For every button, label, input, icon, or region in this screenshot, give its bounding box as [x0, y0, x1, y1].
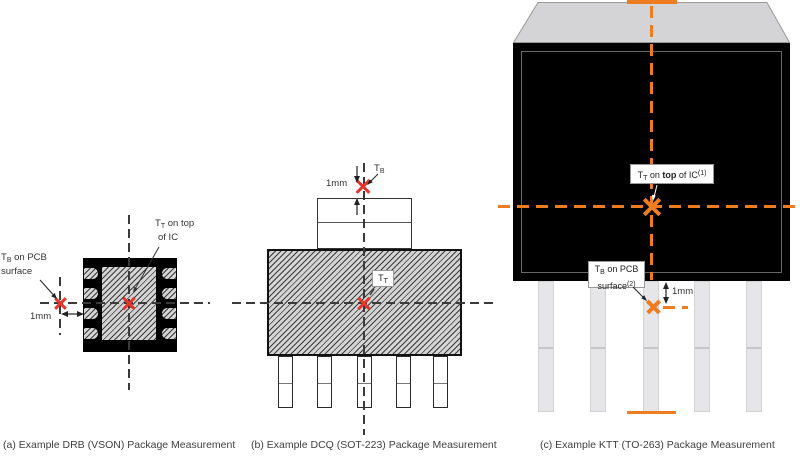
- fig-c-bottom-orange-mark: [627, 411, 676, 414]
- fig-c-pin: [746, 281, 762, 412]
- fig-a-dimension-arrow: [61, 309, 84, 319]
- fig-b-tt-leader-line: [366, 287, 376, 299]
- fig-a-pin: [84, 268, 98, 279]
- fig-a-pin: [162, 328, 176, 339]
- fig-c-vertical-centerline: [650, 6, 653, 280]
- fig-c-tt-label: TT on top of IC(1): [630, 164, 714, 184]
- fig-c-dimension-arrow: [662, 282, 670, 304]
- fig-a-tb-leader-arrow: [38, 278, 60, 302]
- fig-a-pin: [84, 288, 98, 299]
- fig-c-pin: [538, 281, 554, 412]
- fig-b-pin: [433, 356, 448, 408]
- fig-a-tt-label: TT on top of IC: [155, 218, 194, 243]
- fig-c-top-orange-mark: [627, 0, 677, 4]
- fig-c-tt-leader-line: [649, 183, 661, 205]
- fig-b-tt-label: TT: [372, 270, 394, 287]
- package-measurement-figure: 1mm TB on PCB surface TT on top of IC (a…: [0, 0, 801, 458]
- fig-a-pin: [84, 328, 98, 339]
- fig-c-tb-extension-dash: [663, 306, 688, 309]
- fig-c-tb-leader-arrow: [630, 284, 652, 306]
- fig-b-dim-arrow-up: [353, 198, 361, 215]
- fig-c-caption: (c) Example KTT (TO-263) Package Measure…: [540, 439, 775, 451]
- fig-c-pin: [590, 281, 606, 412]
- fig-a-pin: [84, 308, 98, 319]
- fig-a-tb-label: TB on PCB surface: [1, 252, 47, 277]
- fig-b-pin: [278, 356, 293, 408]
- fig-a-pin: [162, 268, 176, 279]
- fig-a-pin: [162, 288, 176, 299]
- fig-a-dim-label: 1mm: [30, 311, 51, 322]
- fig-b-dim-arrow-down: [353, 166, 361, 183]
- fig-b-tb-leader-arrow: [364, 172, 382, 188]
- fig-a-tt-leader-line: [130, 245, 162, 297]
- fig-c-dim-label: 1mm: [672, 286, 693, 297]
- fig-b-pin: [317, 356, 332, 408]
- fig-b-dim-label: 1mm: [326, 178, 347, 189]
- fig-a-pin: [162, 308, 176, 319]
- fig-b-pin: [396, 356, 411, 408]
- fig-c-pin: [694, 281, 710, 412]
